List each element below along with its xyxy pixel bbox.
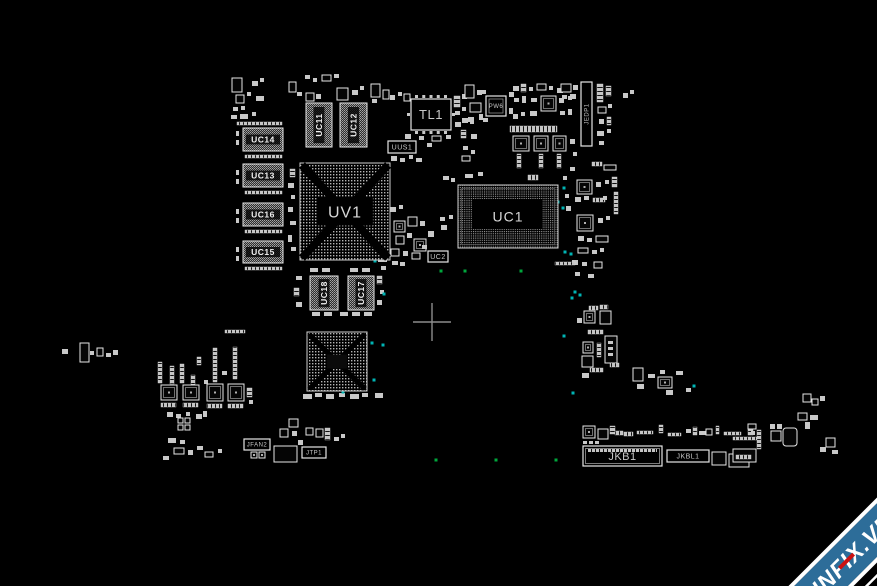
pad (531, 98, 537, 102)
pad (203, 411, 207, 417)
pad (575, 272, 580, 276)
pad (298, 440, 303, 445)
component-outline (596, 236, 608, 242)
pad (529, 87, 533, 91)
pad (562, 95, 567, 99)
pad (197, 446, 203, 450)
pad (236, 179, 239, 184)
pad (598, 218, 603, 223)
pad (339, 393, 345, 397)
pad (222, 371, 227, 375)
component-outline (371, 84, 380, 97)
resistor-array (461, 130, 466, 138)
test-point (495, 459, 498, 462)
component-outline (798, 413, 807, 420)
pad (362, 393, 368, 397)
component-label: UC12 (349, 113, 359, 137)
pad (352, 312, 360, 316)
pad (236, 170, 239, 175)
pad (820, 447, 826, 452)
pad (470, 120, 474, 124)
pad (600, 248, 604, 252)
resistor-array (158, 362, 162, 383)
rounded-component (783, 428, 797, 446)
resistor-array (521, 84, 526, 92)
pad-row (637, 431, 653, 434)
pad (297, 92, 302, 96)
component-outline (280, 429, 288, 437)
test-point (579, 294, 582, 297)
pad (514, 98, 519, 102)
component-outline (598, 429, 608, 439)
resistor-array (606, 86, 611, 96)
pad-row (528, 175, 538, 180)
pad (446, 135, 451, 139)
pad (530, 111, 537, 116)
component-outline (604, 165, 616, 170)
pad (334, 437, 339, 441)
pad (236, 218, 239, 223)
connector-JKB1: JKB1 (583, 446, 662, 466)
pad (296, 276, 302, 280)
pad (595, 441, 599, 444)
pad (596, 182, 601, 187)
pad (236, 247, 239, 252)
resistor-array (377, 276, 382, 284)
component-outline (178, 418, 183, 423)
pad (233, 107, 238, 111)
chip-outline (577, 215, 593, 231)
component-outline (465, 85, 474, 98)
pad (810, 415, 818, 420)
resistor-array (614, 192, 618, 214)
pad (463, 146, 468, 150)
component-outline (306, 93, 314, 101)
component-label: UC11 (314, 113, 324, 136)
pad (260, 78, 264, 82)
memory-chip-UC14: UC14 (243, 128, 283, 151)
pad (549, 86, 553, 90)
pad (398, 92, 402, 96)
bga-chip-UC1: UC1 (458, 185, 558, 248)
pad (252, 112, 256, 116)
pad (522, 96, 526, 103)
chip-outline (251, 452, 257, 458)
pad (218, 449, 222, 453)
connector-label: JTP1 (306, 451, 322, 457)
component-outline (470, 103, 481, 112)
pad (168, 438, 176, 443)
test-point (373, 379, 376, 382)
pad (176, 414, 181, 418)
pad (589, 441, 593, 444)
pad (428, 231, 434, 237)
pad (462, 118, 468, 123)
pad (427, 143, 432, 147)
pad (471, 134, 477, 139)
pad (292, 431, 297, 436)
pad (106, 353, 111, 357)
pad (340, 312, 348, 316)
component-outline (185, 418, 190, 423)
pad (326, 394, 334, 399)
pad (513, 114, 518, 119)
component-outline (97, 348, 103, 356)
test-point (371, 342, 374, 345)
chip-outline (534, 136, 548, 151)
pad (288, 235, 292, 242)
component-outline (408, 217, 417, 226)
component-outline (391, 249, 399, 256)
test-point (563, 335, 566, 338)
component-outline (205, 452, 213, 457)
test-point (555, 459, 558, 462)
component-label: UC13 (251, 171, 275, 181)
test-point (563, 187, 566, 190)
pad (62, 349, 68, 354)
pad-row (225, 330, 245, 333)
component-label: UC18 (319, 281, 329, 305)
resistor-array (197, 357, 201, 365)
pad (449, 215, 453, 219)
pad (113, 350, 118, 355)
pad-row (245, 230, 282, 233)
pad (375, 393, 383, 398)
pad (570, 167, 575, 171)
connector-PW6: PW6 (486, 96, 506, 116)
component-outline (771, 431, 781, 441)
pad-row (590, 368, 603, 372)
memory-chip-UC16: UC16 (243, 203, 283, 226)
component-outline (306, 428, 313, 435)
pad (575, 197, 581, 202)
pad (465, 174, 473, 178)
pad (599, 119, 604, 124)
pad-row (245, 155, 282, 158)
component-outline (578, 248, 588, 253)
pad-row (615, 431, 623, 435)
connector-UC2: UC2 (428, 251, 448, 262)
connector-label: TL1 (419, 107, 443, 122)
resistor-array (693, 427, 697, 435)
pad (606, 216, 610, 220)
component-label: UC14 (251, 135, 275, 145)
pad (247, 92, 251, 96)
pad (399, 205, 403, 209)
pad (570, 139, 575, 144)
pad (509, 108, 513, 114)
pad (666, 390, 673, 395)
pad (566, 206, 571, 211)
pad (608, 353, 613, 356)
pad (479, 114, 483, 120)
component-outline (274, 446, 297, 462)
component-outline (412, 253, 420, 259)
pad (588, 274, 594, 278)
memory-chip-UC13: UC13 (243, 164, 283, 187)
memory-chip-UC18: UC18 (310, 276, 338, 310)
test-point (440, 270, 443, 273)
pad-row (510, 126, 557, 132)
pad (630, 90, 634, 94)
chip-outline (394, 221, 405, 232)
pad-row (724, 432, 741, 435)
pad (603, 196, 607, 200)
resistor-array (213, 348, 217, 382)
pad (608, 104, 612, 108)
pad (290, 221, 296, 225)
component-outline (174, 448, 184, 454)
chip-outline (259, 452, 265, 458)
component-outline (633, 368, 643, 381)
connector-label: JEDP1 (585, 103, 591, 124)
test-point (520, 270, 523, 273)
resistor-array (597, 343, 601, 357)
pad-row (592, 162, 602, 166)
pad (521, 112, 525, 116)
connector-label: UUS1 (392, 145, 413, 152)
resistor-array (757, 430, 761, 449)
component-outline (712, 452, 726, 465)
connector-label: JKB1 (608, 451, 636, 463)
pad (455, 111, 460, 115)
pad (390, 207, 396, 212)
bga-chip (307, 332, 367, 391)
resistor-array (454, 96, 460, 107)
test-point (382, 344, 385, 347)
resistor-array (247, 388, 252, 397)
pad (443, 176, 449, 180)
pad-row (736, 455, 751, 459)
pad (483, 118, 488, 122)
pad (441, 225, 447, 230)
component-outline (178, 425, 183, 430)
component-outline (316, 429, 323, 437)
resistor-array (557, 154, 561, 168)
component-outline (289, 82, 296, 92)
pad (324, 312, 332, 316)
pad (291, 195, 295, 199)
pad (820, 396, 825, 401)
pad (407, 233, 412, 238)
pad (350, 268, 358, 272)
resistor-array (597, 84, 603, 102)
pad (605, 180, 609, 184)
pad (592, 250, 597, 254)
component-outline (404, 94, 410, 101)
test-point (693, 385, 696, 388)
pad (563, 176, 567, 180)
pad (422, 245, 427, 249)
pad-row (228, 404, 243, 408)
resistor-array (517, 154, 521, 168)
chip-outline (584, 311, 595, 323)
resistor-array (233, 347, 237, 379)
memory-chip-UC12: UC12 (340, 103, 367, 147)
pad (341, 434, 345, 438)
component-outline (322, 75, 331, 81)
pad (578, 236, 584, 241)
resistor-array (612, 177, 617, 187)
pad (90, 351, 94, 355)
pad (400, 158, 405, 162)
component-outline (80, 343, 89, 362)
chip-outline (207, 384, 223, 401)
connector-label: PW6 (489, 104, 504, 110)
pad-row (183, 403, 198, 407)
pad (188, 450, 193, 455)
chip-outline (577, 180, 592, 194)
pad (315, 393, 322, 397)
pad (249, 400, 253, 404)
component-label: UV1 (328, 204, 362, 221)
pad (608, 347, 613, 350)
chip-outline (161, 385, 177, 400)
pad-row (668, 433, 681, 436)
pad (599, 141, 604, 145)
pad (597, 131, 604, 136)
pad (305, 75, 310, 79)
pad (676, 371, 683, 375)
resistor-array (607, 117, 611, 125)
component-outline (812, 399, 818, 405)
pad (167, 412, 173, 417)
memory-chip-UC11: UC11 (306, 103, 332, 147)
pad (623, 93, 628, 98)
component-outline (826, 438, 835, 447)
pad (462, 107, 466, 111)
component-outline (462, 156, 470, 161)
pad (648, 374, 655, 378)
connector-JKBL1: JKBL1 (667, 450, 709, 462)
test-point (574, 291, 577, 294)
pad (240, 114, 248, 119)
resistor-array (325, 428, 330, 440)
pad (577, 318, 582, 323)
pad (241, 106, 245, 110)
pad (310, 268, 318, 272)
board-background (0, 0, 877, 586)
resistor-array (539, 154, 543, 168)
pad-row (610, 363, 619, 367)
component-outline (594, 262, 602, 268)
pad (400, 262, 405, 266)
resistor-array (659, 425, 663, 433)
pad (419, 136, 424, 140)
pad (699, 431, 706, 435)
pad (291, 247, 296, 251)
chip-outline (183, 385, 199, 400)
connector-JTP1: JTP1 (302, 447, 326, 458)
pad (478, 172, 483, 176)
pad (392, 261, 398, 265)
pad (660, 370, 665, 374)
component-outline (598, 107, 606, 113)
pad (587, 238, 592, 242)
connector-JEDP1: JEDP1 (581, 82, 592, 146)
pad-row (600, 305, 608, 309)
pad (584, 196, 589, 200)
resistor-array (290, 169, 295, 177)
chip-outline (658, 377, 672, 388)
pad (186, 412, 190, 416)
pad-row (161, 403, 176, 407)
component-outline (185, 425, 190, 430)
pad (196, 414, 202, 419)
pad (381, 266, 386, 270)
pad (163, 456, 169, 460)
test-point (570, 253, 573, 256)
pad-row (588, 330, 603, 334)
pad (477, 90, 482, 95)
pad (236, 131, 239, 136)
pad (582, 373, 589, 378)
pad (322, 268, 330, 272)
pad (568, 109, 572, 115)
chip-outline (541, 96, 556, 111)
connector-JFAN2: JFAN2 (244, 439, 270, 450)
pad (607, 129, 611, 133)
pad (805, 422, 810, 429)
pad-row (733, 437, 759, 440)
pad (313, 78, 317, 82)
component-outline (232, 78, 242, 92)
pad (573, 152, 577, 156)
pad (686, 429, 691, 433)
component-label: UC15 (251, 247, 275, 257)
pad (312, 312, 320, 316)
pad (390, 95, 395, 100)
pad (608, 341, 613, 344)
pad-row (555, 262, 575, 265)
pad-row (624, 432, 633, 436)
pad (637, 384, 644, 389)
pad (482, 90, 486, 94)
component-label: UC1 (492, 209, 523, 225)
pad-row (207, 404, 222, 408)
pad (362, 268, 370, 272)
boardview-screenshot: UC14UC13UC16UC15UC11UC12UC18UC17UV1UC1TL… (0, 0, 877, 586)
pad-row (589, 306, 598, 310)
chip-outline (553, 136, 566, 151)
component-outline (337, 88, 348, 100)
component-outline (432, 136, 441, 141)
test-point (562, 207, 565, 210)
pad (513, 86, 519, 91)
connector-label: JFAN2 (247, 443, 268, 449)
pad-row (237, 122, 282, 125)
pad (350, 394, 359, 399)
component-outline (561, 84, 571, 92)
pad (236, 209, 239, 214)
test-point (383, 293, 386, 296)
resistor-array (170, 366, 174, 384)
pad (770, 424, 775, 429)
pad (364, 312, 372, 316)
pad (751, 431, 755, 435)
memory-chip-UC15: UC15 (243, 241, 283, 263)
pcb-board-drawing: UC14UC13UC16UC15UC11UC12UC18UC17UV1UC1TL… (0, 0, 877, 586)
pad (391, 156, 397, 161)
component-outline (396, 236, 404, 244)
pad (509, 92, 514, 97)
pad (352, 90, 358, 95)
connector-label: UC2 (430, 254, 446, 261)
pad-row (245, 191, 282, 194)
pad (288, 207, 293, 212)
pad (303, 394, 312, 399)
connector-TL1: TL1 (407, 95, 455, 134)
